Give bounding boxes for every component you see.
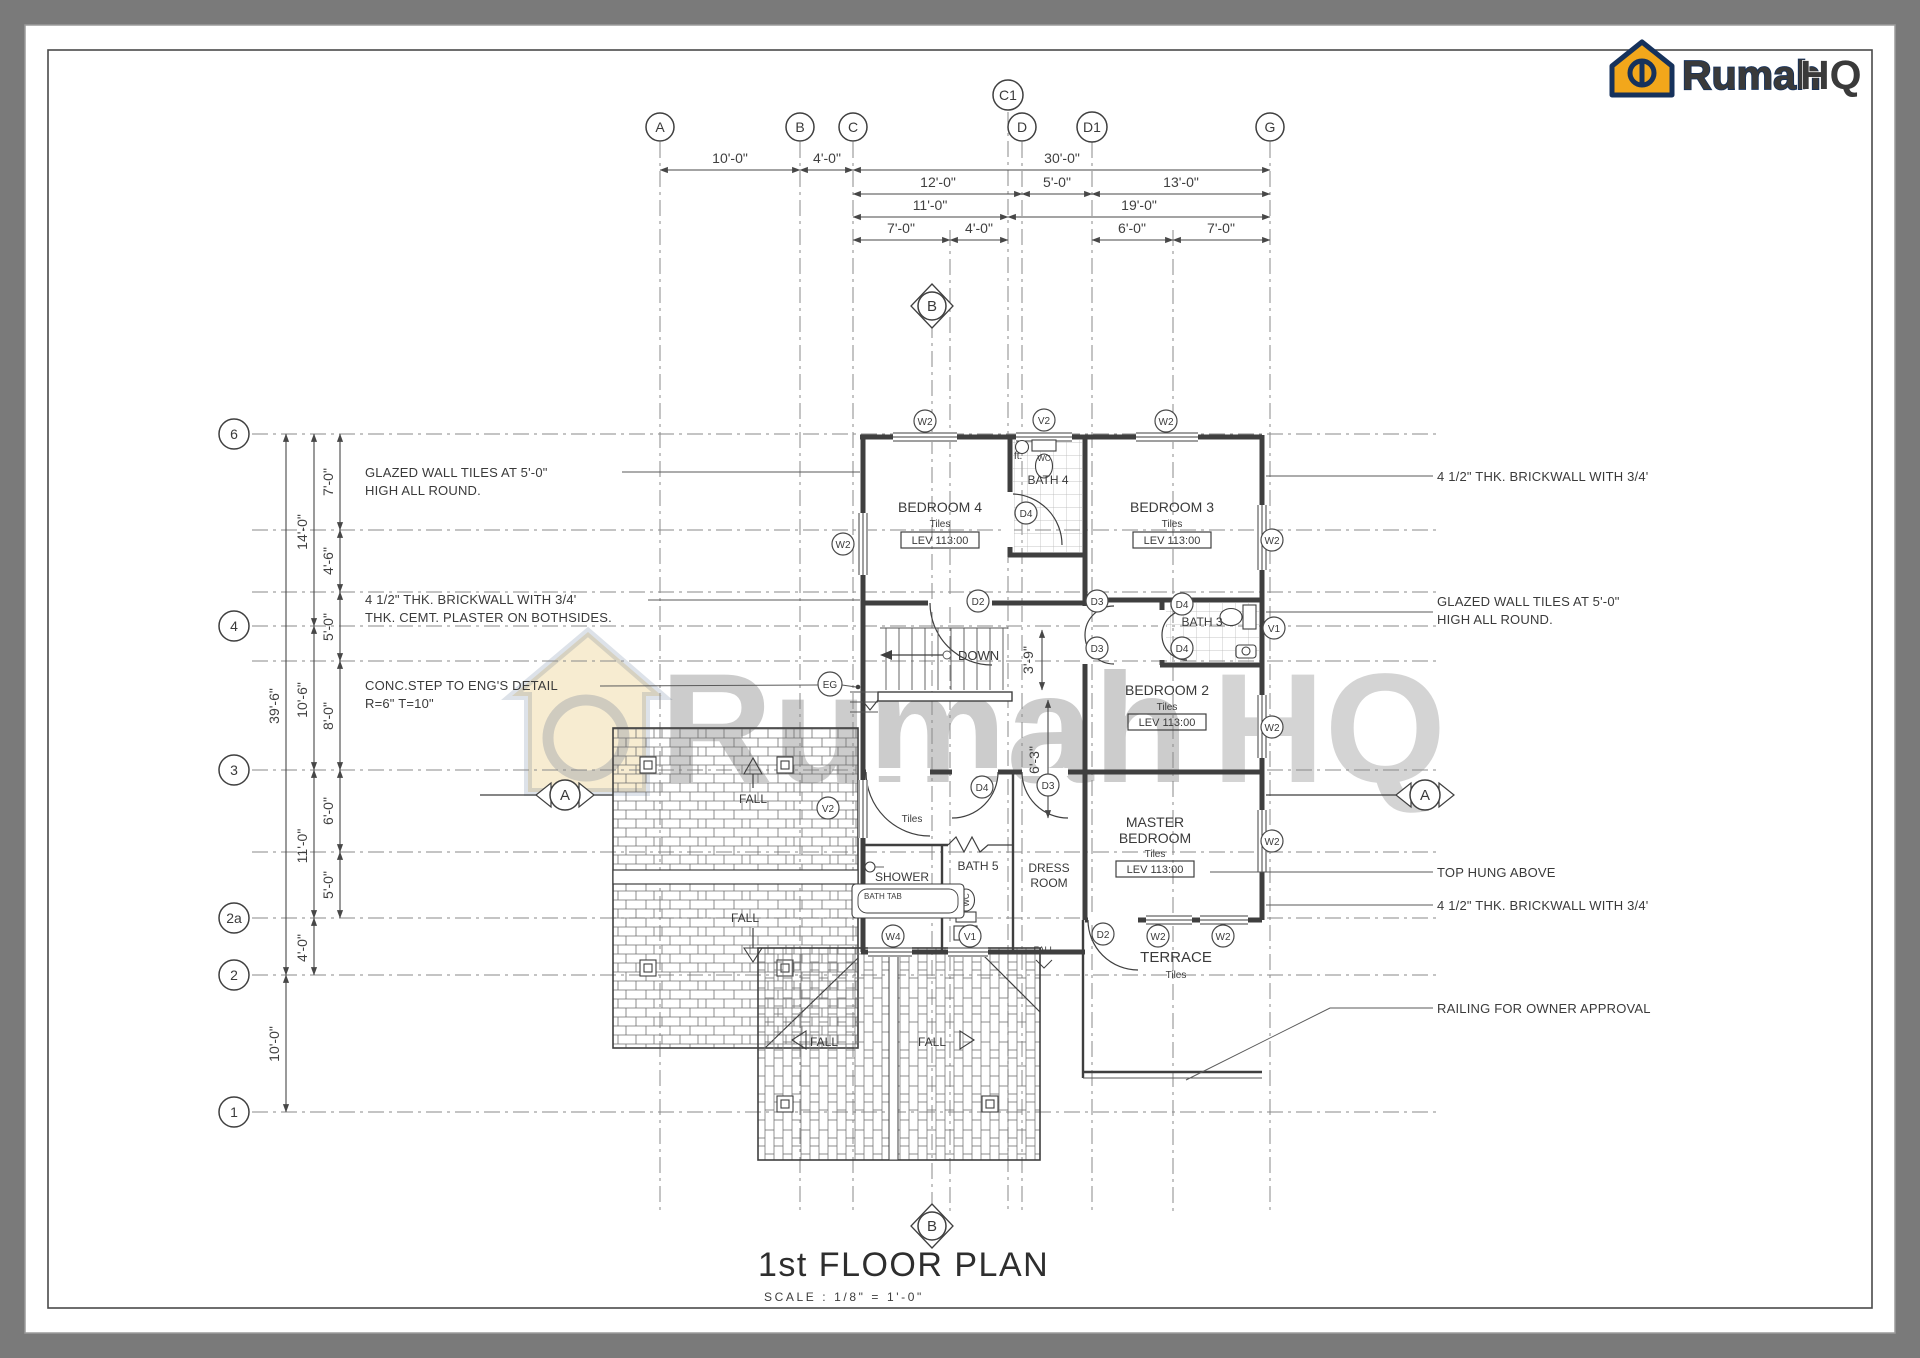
dim-top: 10'-0" xyxy=(712,150,748,166)
dim-top: 4'-0" xyxy=(813,150,841,166)
dim-left: 4'-0" xyxy=(294,934,310,962)
grid-bubble-g: G xyxy=(1256,113,1284,141)
svg-text:D1: D1 xyxy=(1083,119,1101,135)
tag-d2: D2 xyxy=(972,597,985,608)
dim-left-total: 39'-6" xyxy=(266,688,282,724)
dim-top: 12'-0" xyxy=(920,174,956,190)
tag-d4: D4 xyxy=(1176,600,1189,611)
grid-bubble-4: 4 xyxy=(219,611,249,641)
svg-text:1: 1 xyxy=(230,1104,238,1120)
note-brickwall-left-2: THK. CEMT. PLASTER ON BOTHSIDES. xyxy=(365,610,612,625)
dim-top: 11'-0" xyxy=(913,197,948,213)
svg-text:A: A xyxy=(560,787,570,804)
tag-w2: W2 xyxy=(1151,932,1166,943)
svg-text:A: A xyxy=(655,119,665,135)
grid-bubble-2a: 2a xyxy=(219,903,249,933)
room-finish: Tiles xyxy=(1162,519,1183,530)
room-name: BEDROOM 4 xyxy=(898,499,982,515)
dim-left: 4'-6" xyxy=(320,547,336,575)
room-bath3-label: BATH 3 xyxy=(1181,615,1222,629)
svg-text:B: B xyxy=(927,1218,937,1235)
svg-text:G: G xyxy=(1265,119,1276,135)
fall-label: FALL xyxy=(731,911,759,925)
room-finish: Tiles xyxy=(930,519,951,530)
dim-left: 7'-0" xyxy=(320,468,336,496)
grid-bubble-3: 3 xyxy=(219,755,249,785)
dim-top: 6'-0" xyxy=(1118,220,1146,236)
svg-text:4: 4 xyxy=(230,618,238,634)
tag-w2: W2 xyxy=(1265,723,1280,734)
note-concstep-1: CONC.STEP TO ENG'S DETAIL xyxy=(365,678,558,693)
note-glazed-left-1: GLAZED WALL TILES AT 5'-0" xyxy=(365,465,548,480)
room-level: LEV 113:00 xyxy=(1139,717,1196,729)
tag-w2: W2 xyxy=(836,540,851,551)
dim-top: 30'-0" xyxy=(1044,150,1080,166)
ft-label: ft. xyxy=(1014,451,1022,462)
tag-eg: EG xyxy=(823,680,838,691)
room-name: BEDROOM 3 xyxy=(1130,499,1214,515)
fall-label: FALL xyxy=(918,1035,946,1049)
room-dress-label: DRESS xyxy=(1028,861,1069,875)
dim-stair: 6'-3" xyxy=(1026,746,1042,774)
bathtub-label: BATH TAB xyxy=(864,892,902,901)
down-label: DOWN xyxy=(958,648,999,663)
dim-top: 5'-0" xyxy=(1043,174,1071,190)
plan-scale: SCALE : 1/8" = 1'-0" xyxy=(764,1290,924,1304)
fall-label: FALL xyxy=(810,1035,838,1049)
dim-stair: 3'-9" xyxy=(1020,646,1036,674)
drawing-sheet: Rumah HQ 10'-0" 4'-0" 30'-0" 1 xyxy=(0,0,1920,1358)
room-finish: Tiles xyxy=(1145,849,1166,860)
tag-w2: W2 xyxy=(918,417,933,428)
note-glazed-left-2: HIGH ALL ROUND. xyxy=(365,483,481,498)
roof-bottom: FALL FALL FALL xyxy=(758,945,1055,1160)
dim-left: 10'-6" xyxy=(294,682,310,718)
room-level: LEV 113:00 xyxy=(912,535,969,547)
room-master-bedroom: MASTER BEDROOM Tiles LEV 113:00 xyxy=(1116,814,1194,877)
dim-left: 6'-0" xyxy=(320,797,336,825)
grid-bubble-b: B xyxy=(786,113,814,141)
grid-bubble-1: 1 xyxy=(219,1097,249,1127)
svg-text:3: 3 xyxy=(230,762,238,778)
svg-text:B: B xyxy=(927,298,937,315)
svg-text:A: A xyxy=(1420,787,1430,804)
tag-v2: V2 xyxy=(1038,416,1051,427)
note-glazed-right-1: GLAZED WALL TILES AT 5'-0" xyxy=(1437,594,1620,609)
tag-v1: V1 xyxy=(964,932,977,943)
room-name: MASTER xyxy=(1126,814,1184,830)
note-concstep-2: R=6" T=10" xyxy=(365,696,434,711)
tag-d4: D4 xyxy=(1020,509,1033,520)
room-name: BEDROOM xyxy=(1119,830,1191,846)
room-bath4-label: BATH 4 xyxy=(1027,473,1068,487)
grid-bubble-c1: C1 xyxy=(993,80,1023,110)
room-name: BEDROOM 2 xyxy=(1125,682,1209,698)
svg-text:2a: 2a xyxy=(226,910,242,926)
tag-w2: W2 xyxy=(1265,536,1280,547)
svg-text:C1: C1 xyxy=(999,87,1017,103)
tag-v1: V1 xyxy=(1268,624,1281,635)
grid-bubble-d: D xyxy=(1008,113,1036,141)
tag-d3: D3 xyxy=(1091,597,1104,608)
note-brickwall-right-bottom: 4 1/2" THK. BRICKWALL WITH 3/4' xyxy=(1437,898,1648,913)
note-brickwall-right-top: 4 1/2" THK. BRICKWALL WITH 3/4' xyxy=(1437,469,1648,484)
floor-plan-svg: Rumah HQ 10'-0" 4'-0" 30'-0" 1 xyxy=(0,0,1920,1358)
note-brickwall-left-1: 4 1/2" THK. BRICKWALL WITH 3/4' xyxy=(365,592,576,607)
room-name: TERRACE xyxy=(1140,949,1212,966)
fall-label: FALL xyxy=(739,792,767,806)
tag-d2: D2 xyxy=(1097,930,1110,941)
svg-text:2: 2 xyxy=(230,967,238,983)
dim-top: 7'-0" xyxy=(887,220,915,236)
note-railing: RAILING FOR OWNER APPROVAL xyxy=(1437,1001,1651,1016)
grid-bubble-6: 6 xyxy=(219,419,249,449)
room-shower-label: SHOWER xyxy=(875,870,929,884)
dim-left: 14'-0" xyxy=(294,514,310,550)
tag-d3: D3 xyxy=(1042,781,1055,792)
dim-left: 5'-0" xyxy=(320,871,336,899)
svg-text:C: C xyxy=(848,119,858,135)
note-glazed-right-2: HIGH ALL ROUND. xyxy=(1437,612,1553,627)
tag-d4: D4 xyxy=(976,783,989,794)
room-level: LEV 113:00 xyxy=(1127,864,1184,876)
dim-left: 5'-0" xyxy=(320,613,336,641)
grid-bubble-2: 2 xyxy=(219,960,249,990)
room-finish: Tiles xyxy=(1157,702,1178,713)
tag-d3: D3 xyxy=(1091,644,1104,655)
wc-label: WC xyxy=(1037,454,1051,463)
room-bath5-label: BATH 5 xyxy=(957,859,998,873)
dim-top: 7'-0" xyxy=(1207,220,1235,236)
svg-text:D: D xyxy=(1017,119,1027,135)
hall-finish-label: Tiles xyxy=(902,814,923,825)
note-top-hung: TOP HUNG ABOVE xyxy=(1437,865,1556,880)
grid-bubble-a: A xyxy=(646,113,674,141)
grid-bubble-c: C xyxy=(839,113,867,141)
room-dress-label: ROOM xyxy=(1030,876,1067,890)
dim-left: 8'-0" xyxy=(320,702,336,730)
dim-top: 19'-0" xyxy=(1121,197,1157,213)
dim-top: 4'-0" xyxy=(965,220,993,236)
room-level: LEV 113:00 xyxy=(1144,535,1201,547)
dim-top: 13'-0" xyxy=(1163,174,1199,190)
tag-w2: W2 xyxy=(1216,932,1231,943)
dim-left: 10'-0" xyxy=(266,1026,282,1062)
svg-text:6: 6 xyxy=(230,426,238,442)
logo-hq: HQ xyxy=(1800,52,1862,98)
tag-v2: V2 xyxy=(822,804,835,815)
tag-w2: W2 xyxy=(1159,417,1174,428)
tag-w4: W4 xyxy=(886,932,901,943)
plan-title: 1st FLOOR PLAN xyxy=(758,1246,1049,1284)
dim-left: 11'-0" xyxy=(294,829,310,864)
grid-bubble-d1: D1 xyxy=(1077,112,1107,142)
room-finish: Tiles xyxy=(1166,970,1187,981)
tag-d4: D4 xyxy=(1176,644,1189,655)
svg-text:B: B xyxy=(795,119,804,135)
tag-w2: W2 xyxy=(1265,837,1280,848)
